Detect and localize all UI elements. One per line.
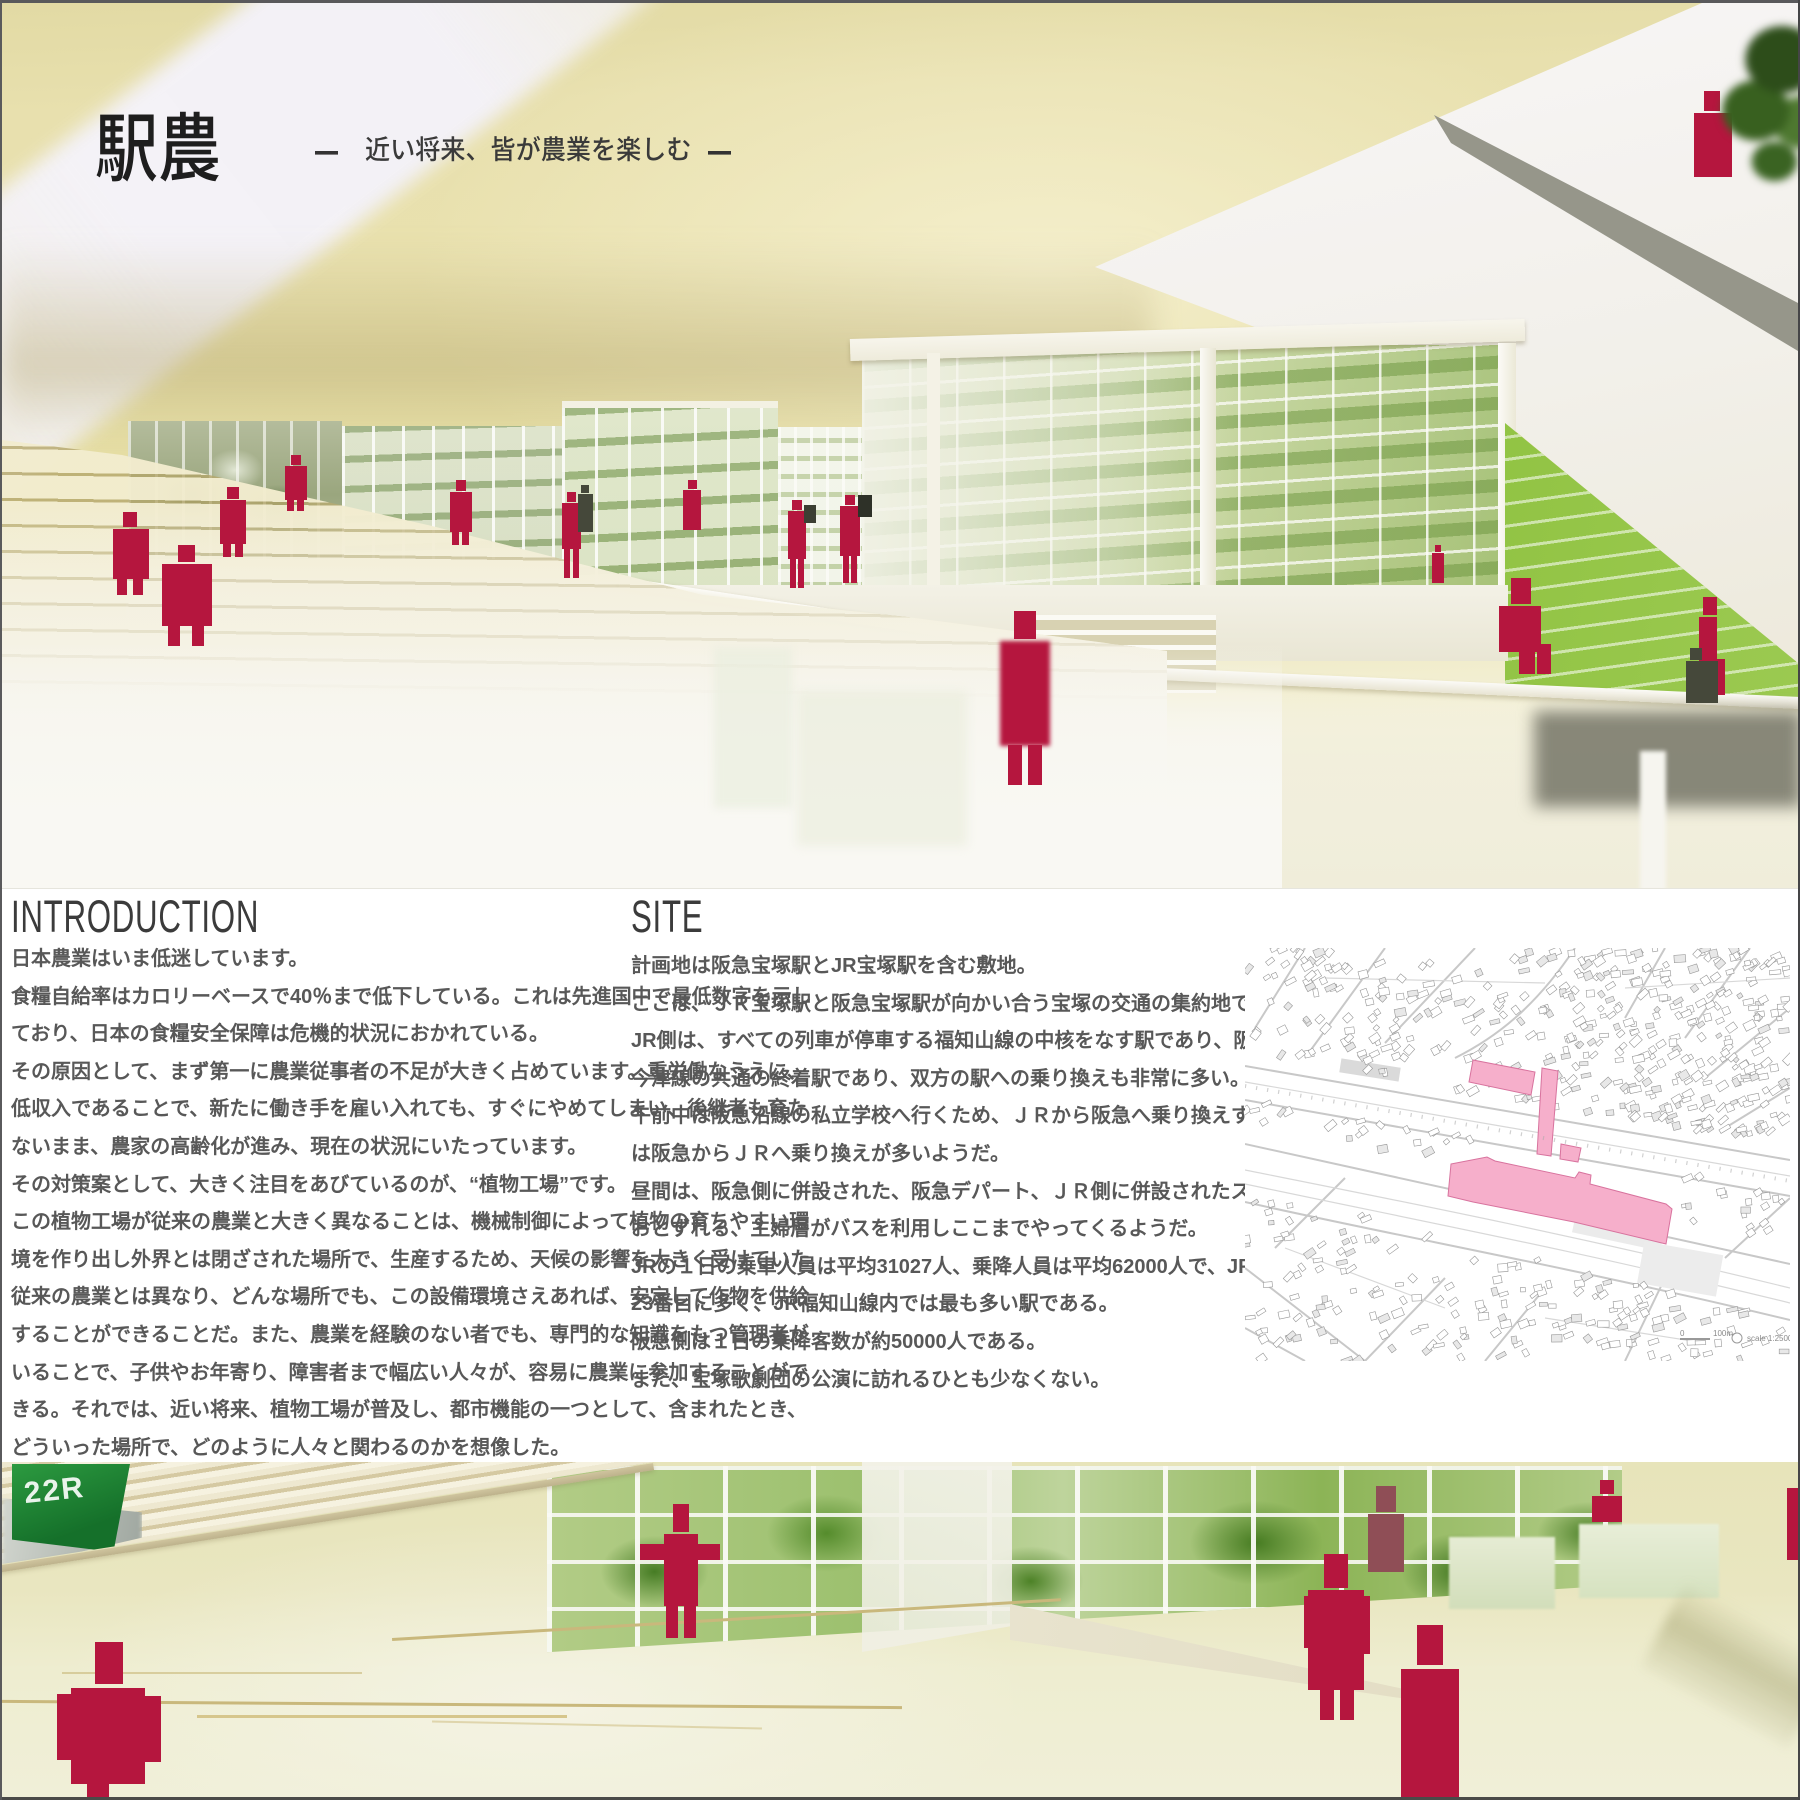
svg-text:0: 0 <box>1680 1329 1685 1338</box>
svg-text:100m: 100m <box>1713 1329 1733 1338</box>
svg-text:scale 1:2500: scale 1:2500 <box>1747 1334 1790 1343</box>
